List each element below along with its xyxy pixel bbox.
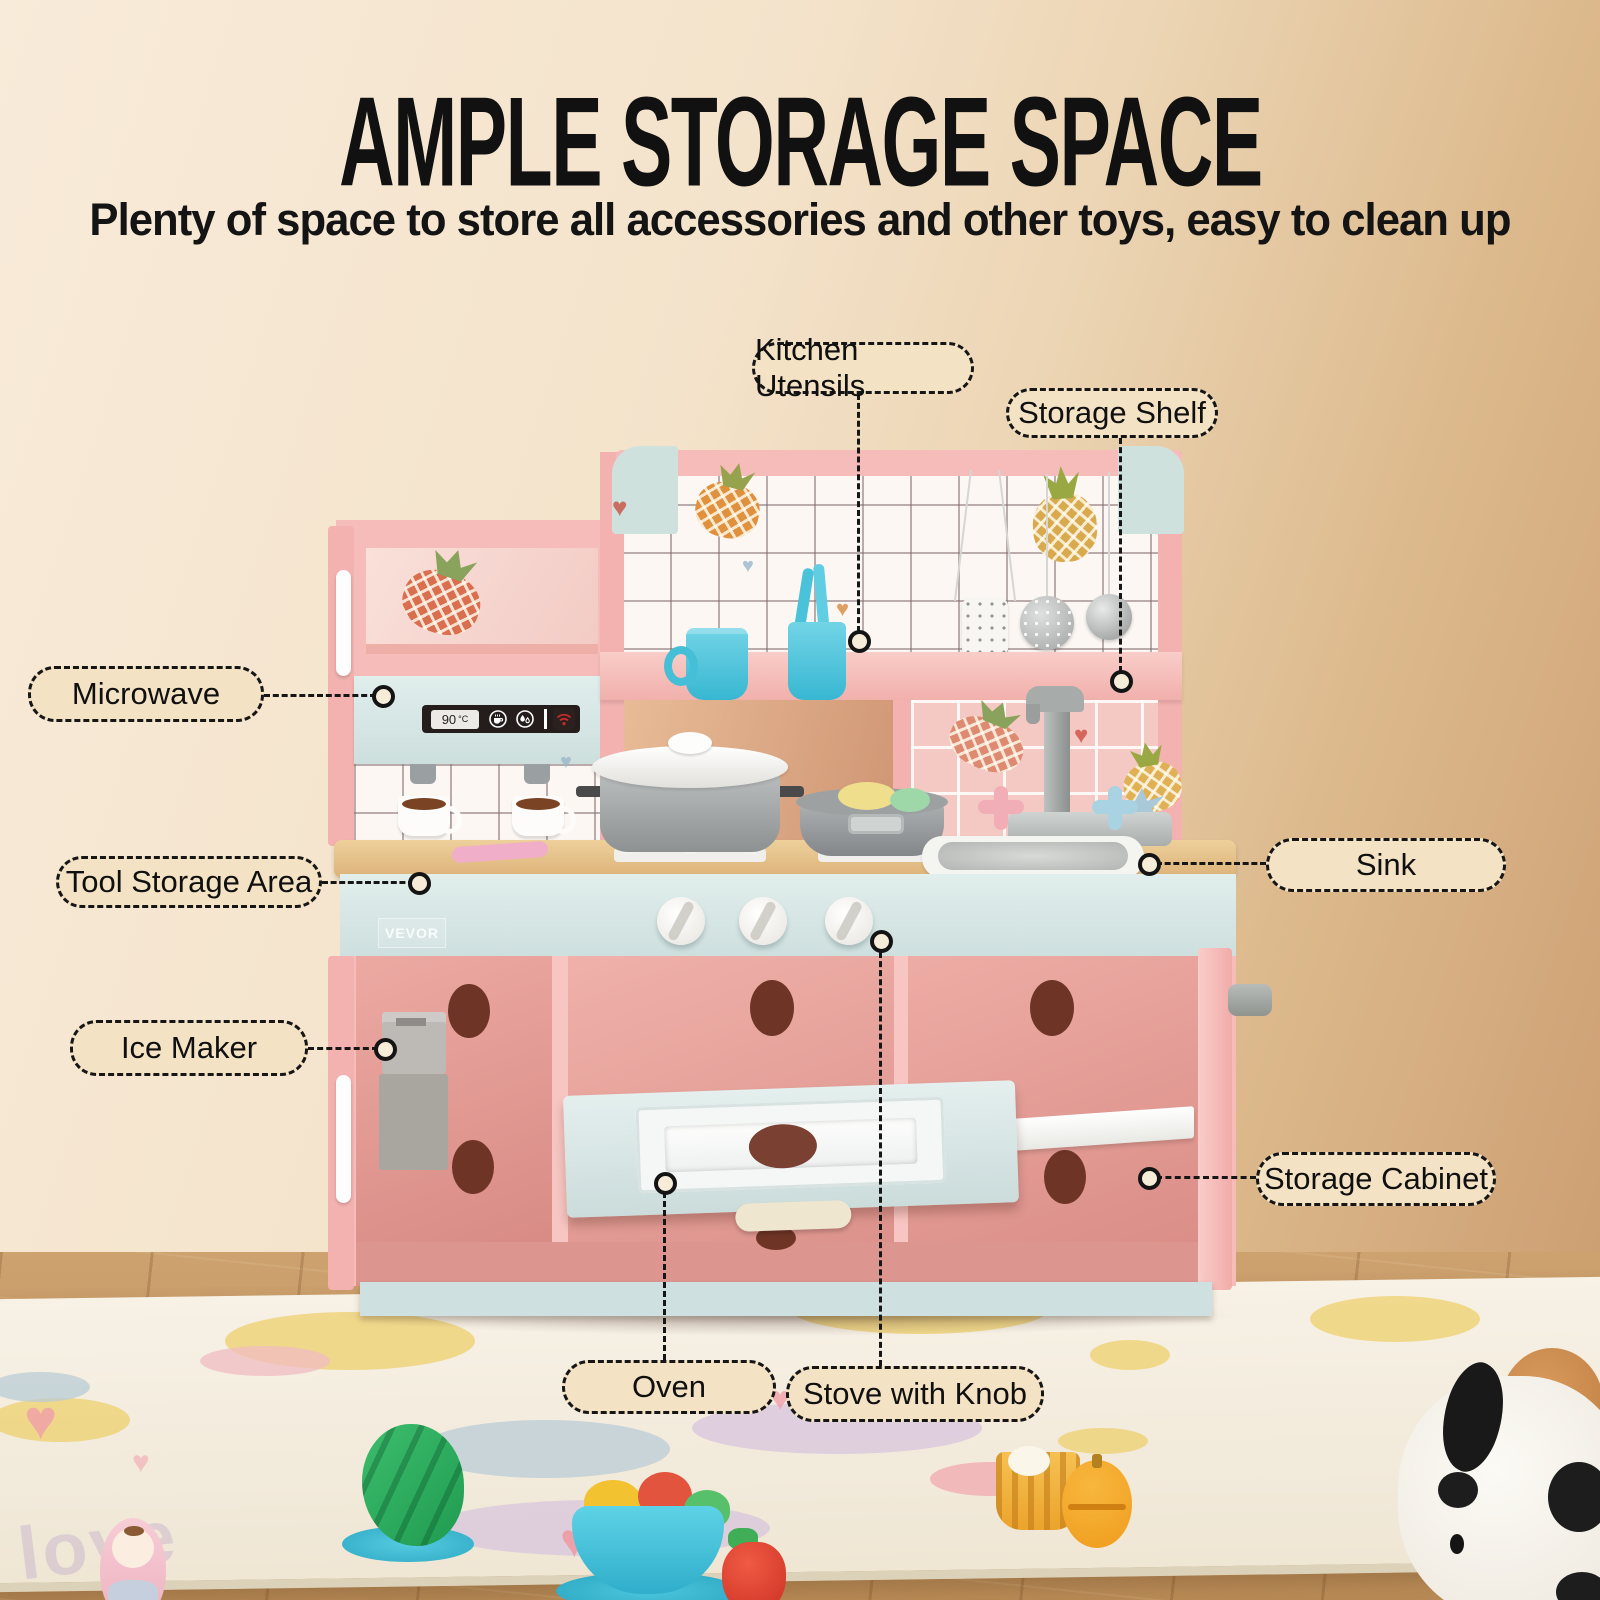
oven-door-handle	[735, 1200, 852, 1232]
cup-handle	[550, 806, 576, 834]
microwave-display: 90°C	[422, 705, 580, 733]
ice-maker-body	[379, 1074, 448, 1170]
oven-window-hole	[748, 1123, 817, 1169]
front-panel	[340, 874, 1236, 958]
orange-toy	[1062, 1460, 1132, 1548]
callout-line-storage-shelf	[1119, 438, 1122, 672]
ladle-utensil	[1086, 594, 1132, 640]
heart-sticker-icon	[1074, 724, 1088, 748]
storage-cabinet-door	[1198, 948, 1232, 1290]
callout-dot-sink	[1138, 853, 1161, 876]
orange-stem	[1092, 1454, 1102, 1468]
callout-dot-tool-storage	[408, 872, 431, 895]
tool-storage-backsplash	[354, 764, 618, 846]
rug-shape-yellow	[1058, 1428, 1148, 1454]
callout-label: Stove with Knob	[803, 1376, 1027, 1412]
callout-label: Storage Cabinet	[1264, 1161, 1488, 1197]
callout-sink: Sink	[1266, 838, 1506, 892]
callout-label: Microwave	[72, 676, 220, 712]
steam-indicator-icon	[553, 708, 575, 730]
cutout-hole	[448, 984, 490, 1038]
scene: love 90°C	[0, 0, 1600, 1600]
door-handle	[336, 570, 351, 676]
plush-eye	[1450, 1534, 1464, 1554]
callout-storage-cabinet: Storage Cabinet	[1256, 1152, 1496, 1206]
water-drops-icon	[516, 710, 534, 728]
callout-dot-ice-maker	[374, 1038, 397, 1061]
oven-window-frame	[635, 1097, 946, 1194]
ice-maker-slot	[396, 1018, 426, 1026]
callout-dot-storage-cabinet	[1138, 1167, 1161, 1190]
callout-label: Sink	[1356, 847, 1416, 883]
callout-oven: Oven	[562, 1360, 776, 1414]
blue-cup	[686, 628, 748, 700]
plush-spot	[1548, 1462, 1600, 1532]
callout-dot-storage-shelf	[1110, 670, 1133, 693]
microwave-cabinet-interior	[366, 548, 598, 648]
cup-handle	[436, 806, 462, 834]
callout-label: Storage Shelf	[1018, 395, 1206, 431]
plush-spot	[1556, 1572, 1600, 1600]
blue-tap-handle	[1092, 786, 1138, 834]
egg-toy	[1008, 1446, 1050, 1476]
callout-dot-oven	[654, 1172, 677, 1195]
cup-handle	[664, 646, 698, 686]
callout-line-stove	[879, 952, 882, 1366]
toy-egg	[838, 782, 896, 810]
rug-shape-yellow	[1090, 1340, 1170, 1370]
callout-line-storage-cabinet	[1156, 1176, 1256, 1179]
callout-label: Ice Maker	[121, 1030, 257, 1066]
cutout-hole	[1030, 980, 1074, 1036]
orange-seam	[1068, 1504, 1126, 1510]
coffee-cup	[398, 796, 450, 836]
pink-tap-handle	[978, 786, 1024, 834]
pan-handle	[848, 814, 904, 834]
stove-knob	[657, 897, 705, 945]
lcd-screen: 90°C	[431, 710, 479, 729]
callout-dot-stove	[870, 930, 893, 953]
page-title: AMPLE STORAGE SPACE	[0, 84, 1600, 203]
mint-corner-bracket	[1118, 446, 1184, 534]
page-subtitle: Plenty of space to store all accessories…	[24, 194, 1576, 246]
doll-hair	[124, 1526, 144, 1536]
callout-line-ice-maker	[308, 1047, 378, 1050]
callout-dot-microwave	[372, 685, 395, 708]
cow-plush-toy	[1398, 1376, 1600, 1600]
cabinet-door-handle	[1228, 984, 1272, 1016]
heart-sticker-icon	[742, 556, 754, 576]
utensil-wire	[1046, 474, 1048, 602]
cutout-hole	[452, 1140, 494, 1194]
dispenser-nozzle	[524, 764, 550, 784]
callout-label: Tool Storage Area	[66, 864, 312, 900]
callout-kitchen-utensils: Kitchen Utensils	[752, 342, 974, 394]
dispenser-nozzle	[410, 764, 436, 784]
callout-label: Oven	[632, 1369, 706, 1405]
brand-logo: VEVOR	[378, 918, 446, 948]
coffee-cup	[512, 796, 564, 836]
stove-knob	[739, 897, 787, 945]
oven-door	[563, 1080, 1019, 1218]
door-handle	[336, 1075, 351, 1203]
sink-basin	[922, 836, 1144, 878]
hutch-top-rail	[616, 450, 1182, 476]
callout-stove-with-knob: Stove with Knob	[786, 1366, 1044, 1422]
cutout-hole	[750, 980, 794, 1036]
grater-utensil	[962, 598, 1008, 656]
coffee-icon	[489, 710, 507, 728]
callout-tool-storage-area: Tool Storage Area	[56, 856, 322, 908]
doll-pattern	[108, 1580, 158, 1600]
rug-heart-icon	[24, 1392, 57, 1448]
strawberry-toy	[722, 1542, 786, 1600]
stove-knob	[825, 897, 873, 945]
rug-heart-icon	[132, 1448, 150, 1478]
callout-label: Kitchen Utensils	[755, 332, 971, 404]
kickboard	[360, 1282, 1212, 1316]
heart-sticker-icon	[560, 752, 572, 772]
sink-bowl	[938, 842, 1128, 870]
blue-cup	[788, 622, 846, 700]
rug-shape-pink	[200, 1346, 330, 1376]
heart-sticker-icon	[612, 494, 627, 520]
callout-dot-kitchen-utensils	[848, 630, 871, 653]
callout-microwave: Microwave	[28, 666, 264, 722]
callout-line-tool-storage	[322, 881, 414, 884]
cabinet-shelf-edge	[366, 644, 598, 654]
lcd-temperature: 90	[442, 712, 456, 727]
display-separator	[544, 709, 547, 729]
callout-storage-shelf: Storage Shelf	[1006, 388, 1218, 438]
cutout-hole	[1044, 1150, 1086, 1204]
rug-shape-yellow	[1310, 1296, 1480, 1342]
plush-spot	[1438, 1472, 1478, 1508]
callout-line-microwave	[264, 694, 376, 697]
pot-lid-knob	[668, 732, 712, 754]
coffee-liquid	[516, 798, 560, 810]
callout-ice-maker: Ice Maker	[70, 1020, 308, 1076]
callout-line-sink	[1156, 862, 1266, 865]
lcd-unit: °C	[458, 714, 468, 724]
faucet-column	[1044, 700, 1070, 822]
faucet-spout-tip	[1026, 704, 1040, 724]
heart-sticker-icon	[836, 598, 849, 620]
callout-line-oven	[663, 1192, 666, 1360]
coffee-liquid	[402, 798, 446, 810]
callout-line-kitchen-utensils	[857, 394, 860, 632]
utensil-wire	[1108, 472, 1110, 600]
toy-vegetable	[890, 788, 930, 812]
skimmer-utensil	[1020, 596, 1074, 650]
